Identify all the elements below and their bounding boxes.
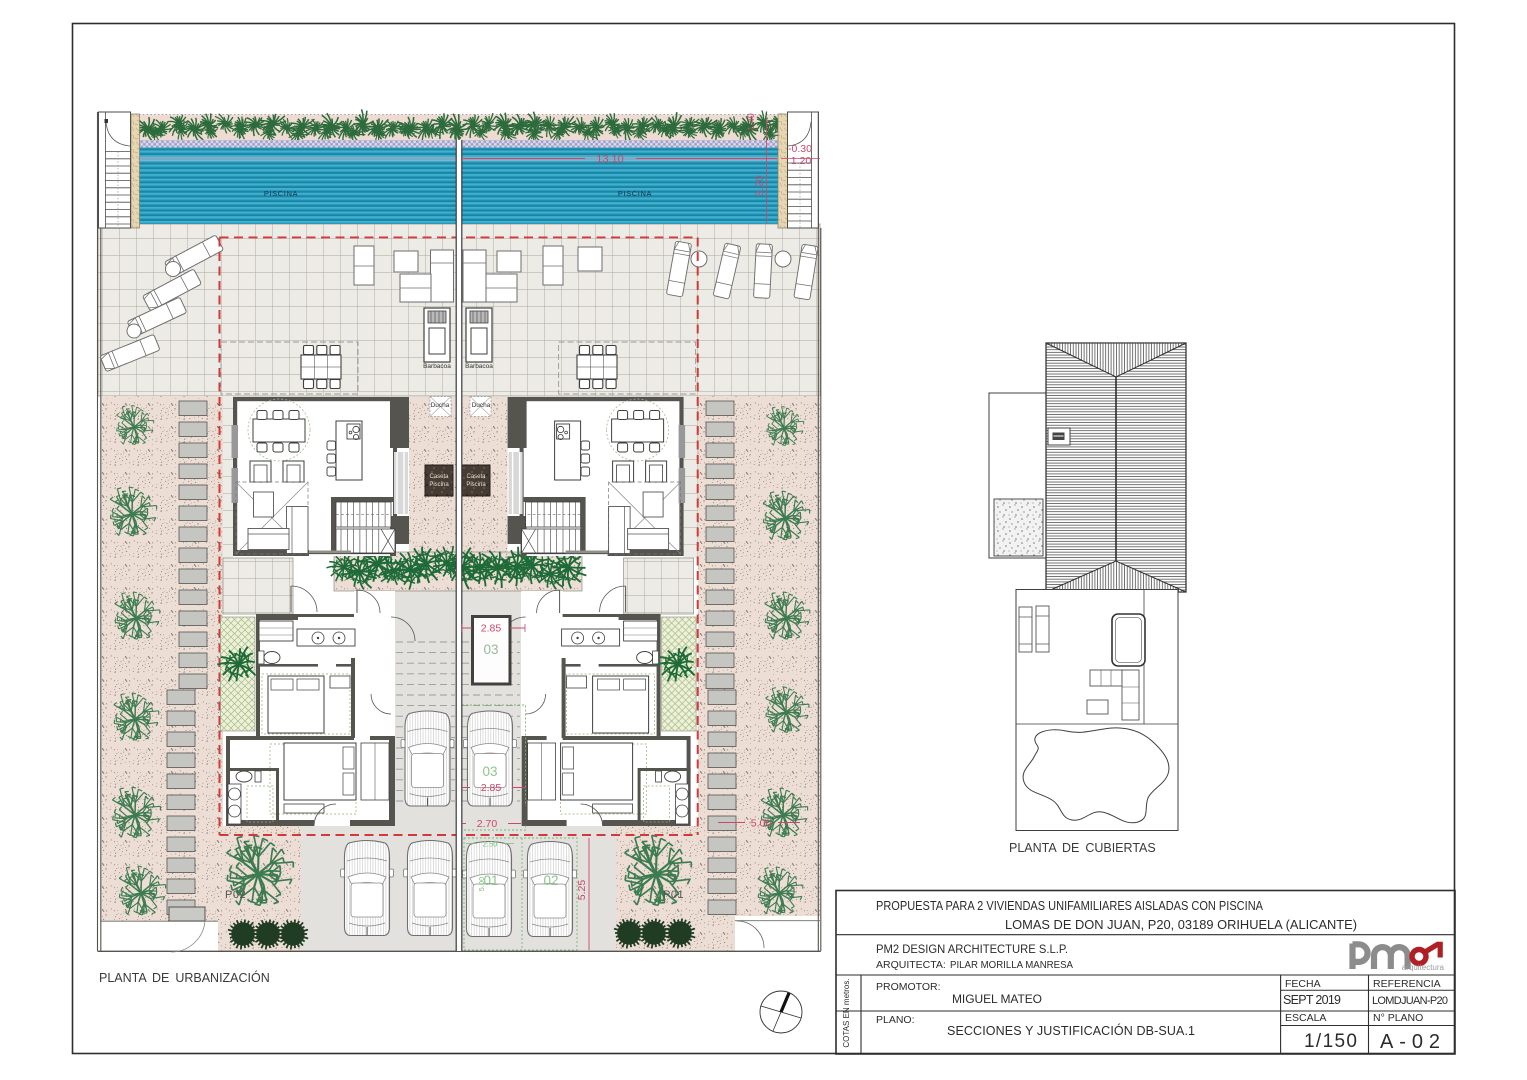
svg-text:LOMAS DE DON JUAN, P20, 03189: LOMAS DE DON JUAN, P20, 03189 ORIHUELA (… (1005, 918, 1357, 932)
svg-text:02: 02 (543, 873, 558, 888)
svg-text:PISCINA: PISCINA (264, 189, 298, 198)
svg-text:PROMOTOR:: PROMOTOR: (876, 981, 941, 993)
svg-text:SEPT 2019: SEPT 2019 (1283, 993, 1341, 1007)
svg-text:COTAS EN metros.: COTAS EN metros. (842, 978, 851, 1047)
svg-text:PILAR MORILLA MANRESA: PILAR MORILLA MANRESA (950, 959, 1073, 971)
svg-text:ESCALA: ESCALA (1285, 1012, 1326, 1024)
svg-text:1.40: 1.40 (746, 113, 756, 131)
svg-text:5.00: 5.00 (477, 877, 486, 892)
svg-text:MIGUEL MATEO: MIGUEL MATEO (952, 992, 1042, 1006)
svg-text:Ducha: Ducha (472, 402, 491, 409)
svg-text:-0.30: -0.30 (788, 143, 812, 155)
svg-text:P01: P01 (663, 889, 684, 901)
svg-text:2.70: 2.70 (477, 818, 498, 830)
svg-text:5.25: 5.25 (576, 880, 588, 901)
svg-text:13.10: 13.10 (596, 154, 624, 166)
svg-text:PLANO:: PLANO: (876, 1014, 915, 1026)
svg-text:5.00: 5.00 (751, 818, 772, 830)
svg-text:PROPUESTA PARA 2 VIVIENDAS UNI: PROPUESTA PARA 2 VIVIENDAS UNIFAMILIARES… (876, 899, 1264, 913)
svg-text:arquitectura: arquitectura (1402, 963, 1445, 972)
svg-text:2.85: 2.85 (481, 623, 502, 635)
svg-text:SECCIONES Y JUSTIFICACIÓN DB-: SECCIONES Y JUSTIFICACIÓN DB-SUA.1 (947, 1023, 1195, 1038)
svg-text:Piscina: Piscina (429, 482, 449, 488)
svg-text:1/150: 1/150 (1304, 1031, 1357, 1052)
svg-text:03: 03 (482, 764, 497, 779)
svg-text:1.20: 1.20 (791, 155, 812, 167)
svg-text:REFERENCIA: REFERENCIA (1373, 978, 1441, 990)
svg-text:PM2 DESIGN ARCHITECTURE S.L.P.: PM2 DESIGN ARCHITECTURE S.L.P. (876, 942, 1068, 956)
svg-text:Caseta: Caseta (429, 474, 449, 480)
svg-text:Ducha: Ducha (431, 402, 450, 409)
svg-text:FECHA: FECHA (1285, 978, 1321, 990)
svg-text:P02: P02 (225, 889, 246, 901)
svg-text:03: 03 (483, 642, 498, 657)
svg-text:Barbacoa: Barbacoa (423, 363, 451, 370)
svg-text:PLANTA DE CUBIERTAS: PLANTA DE CUBIERTAS (1009, 841, 1156, 855)
svg-text:3.20: 3.20 (754, 175, 766, 196)
svg-text:N° PLANO: N° PLANO (1373, 1012, 1423, 1024)
svg-text:Caseta: Caseta (466, 474, 486, 480)
svg-text:2.85: 2.85 (481, 782, 502, 794)
svg-text:Piscina: Piscina (466, 482, 486, 488)
svg-text:ARQUITECTA:: ARQUITECTA: (876, 959, 946, 971)
svg-text:PISCINA: PISCINA (618, 189, 652, 198)
svg-text:2.50: 2.50 (483, 840, 498, 849)
svg-text:Barbacoa: Barbacoa (465, 363, 493, 370)
svg-text:PLANTA DE URBANIZACIÓN: PLANTA DE URBANIZACIÓN (99, 970, 270, 985)
svg-text:LOMDJUAN-P20: LOMDJUAN-P20 (1372, 995, 1448, 1007)
